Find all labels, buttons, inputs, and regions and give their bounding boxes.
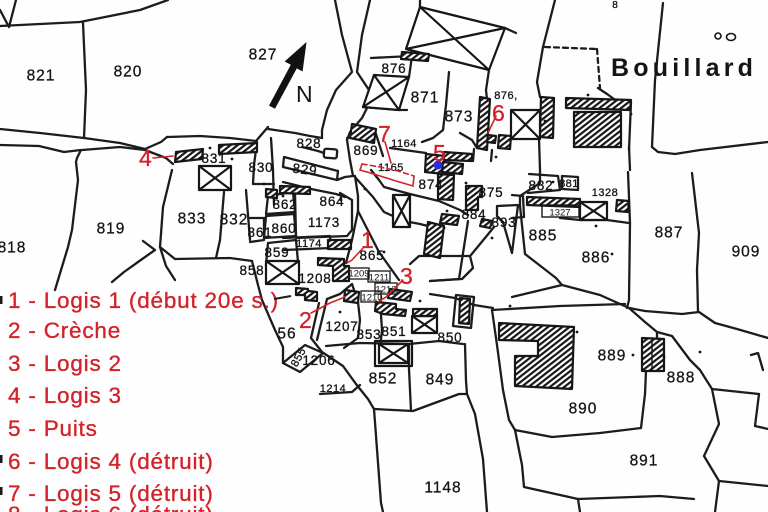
svg-text:885: 885 [529, 228, 558, 245]
svg-text:833: 833 [178, 211, 207, 228]
svg-text:875: 875 [479, 185, 504, 200]
svg-text:1173: 1173 [308, 215, 340, 230]
svg-text:869: 869 [354, 143, 379, 158]
svg-text:1208: 1208 [298, 271, 331, 286]
svg-text:821: 821 [27, 68, 56, 85]
svg-text:829: 829 [292, 161, 319, 179]
svg-text:N: N [296, 81, 313, 107]
svg-text:888: 888 [667, 370, 696, 387]
svg-text:884: 884 [462, 207, 487, 222]
svg-text:827: 827 [249, 47, 278, 64]
svg-text:861: 861 [248, 225, 273, 240]
svg-text:853: 853 [357, 327, 382, 342]
svg-text:1174: 1174 [296, 238, 322, 250]
svg-text:852: 852 [369, 371, 398, 388]
svg-text:1207: 1207 [325, 319, 358, 334]
svg-text:886: 886 [582, 250, 611, 267]
svg-text:4 - Logis 3: 4 - Logis 3 [8, 383, 122, 408]
svg-text:5 - Puits: 5 - Puits [8, 416, 98, 441]
svg-text:876: 876 [382, 61, 407, 76]
svg-text:862: 862 [273, 197, 298, 212]
svg-text:819: 819 [97, 221, 126, 238]
svg-text:1206: 1206 [302, 353, 335, 368]
svg-text:1 - Logis 1 (début 20e s.): 1 - Logis 1 (début 20e s.) [8, 288, 279, 313]
svg-text:850: 850 [438, 330, 463, 345]
svg-text:2 - Crèche: 2 - Crèche [8, 318, 121, 343]
svg-text:3 - Logis 2: 3 - Logis 2 [8, 351, 122, 376]
svg-text:828: 828 [297, 136, 322, 151]
svg-text:871: 871 [411, 90, 440, 107]
svg-text:909: 909 [732, 244, 761, 261]
svg-text:1: 1 [361, 227, 374, 253]
svg-text:1328: 1328 [592, 187, 618, 199]
svg-text:873: 873 [445, 109, 474, 126]
svg-text:8: 8 [612, 0, 618, 11]
svg-text:832: 832 [220, 212, 249, 229]
svg-text:5: 5 [433, 140, 446, 166]
svg-text:864: 864 [320, 194, 345, 209]
svg-text:8 - Logis 6 (détruit): 8 - Logis 6 (détruit) [8, 502, 214, 512]
svg-text:860: 860 [272, 221, 297, 236]
svg-text:3: 3 [400, 263, 413, 289]
svg-text:6 - Logis 4 (détruit): 6 - Logis 4 (détruit) [8, 449, 214, 474]
svg-text:889: 889 [598, 348, 627, 365]
svg-text:7: 7 [378, 121, 391, 147]
svg-text:874: 874 [419, 177, 444, 192]
svg-text:881: 881 [559, 178, 579, 190]
svg-text:887: 887 [655, 225, 684, 242]
svg-text:820: 820 [114, 64, 143, 81]
svg-text:6: 6 [492, 100, 505, 126]
svg-text:882: 882 [529, 178, 554, 193]
svg-text:851: 851 [382, 324, 407, 339]
svg-text:1148: 1148 [424, 480, 461, 497]
svg-text:1164: 1164 [391, 138, 417, 150]
svg-text:893: 893 [492, 215, 517, 230]
svg-text:1214: 1214 [320, 383, 346, 395]
svg-text:831: 831 [202, 151, 227, 166]
svg-text:4: 4 [139, 145, 152, 171]
svg-text:891: 891 [630, 453, 659, 470]
svg-text:890: 890 [569, 401, 598, 418]
svg-text:830: 830 [249, 160, 274, 175]
svg-text:849: 849 [426, 372, 455, 389]
svg-text:858: 858 [240, 263, 265, 278]
svg-text:Bouillard: Bouillard [611, 54, 757, 82]
svg-text:859: 859 [265, 245, 290, 260]
svg-text:1209: 1209 [348, 269, 369, 280]
svg-text:2: 2 [299, 307, 312, 333]
svg-text:56: 56 [277, 326, 296, 343]
svg-text:818: 818 [0, 240, 26, 257]
